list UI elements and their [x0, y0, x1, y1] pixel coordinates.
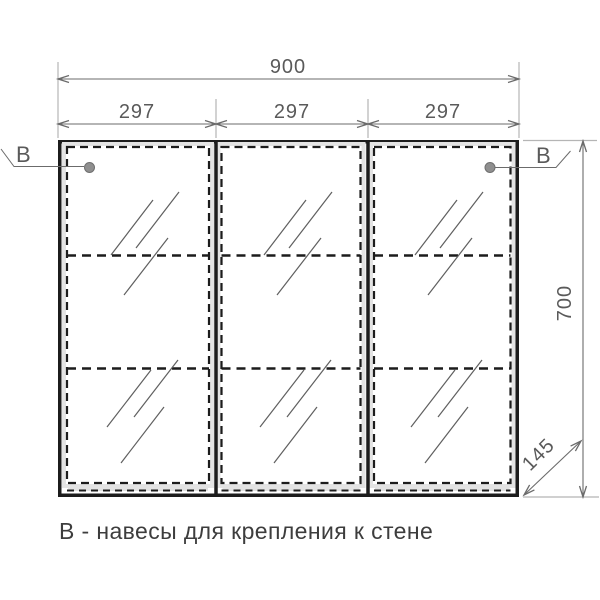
- carcass-band-bottom: [223, 484, 360, 491]
- dimension-label-overall-width: 900: [270, 56, 306, 78]
- dimension-door-widths: 297 297 297: [58, 99, 519, 138]
- hinge-label-right: В: [536, 143, 551, 168]
- cabinet-technical-drawing: 900 297 297 297: [0, 0, 600, 600]
- dimension-label-door-1: 297: [119, 101, 155, 123]
- drawing-canvas: 900 297 297 297: [0, 0, 600, 600]
- hinge-point: [85, 163, 95, 173]
- carcass-band-bottom: [375, 484, 510, 491]
- dimension-label-height: 700: [554, 285, 576, 321]
- dimension-label-door-2: 297: [274, 101, 310, 123]
- hinge-point: [485, 163, 495, 173]
- dimension-depth: 145: [518, 434, 581, 495]
- cabinet-front-view: [60, 142, 518, 496]
- dimension-overall-width: 900: [58, 56, 519, 138]
- caption-note: В - навесы для крепления к стене: [59, 518, 579, 545]
- dimension-label-depth: 145: [518, 434, 559, 475]
- cabinet-outer-body: [60, 142, 518, 496]
- dimension-label-door-3: 297: [425, 101, 461, 123]
- hinge-label-left: В: [16, 142, 31, 167]
